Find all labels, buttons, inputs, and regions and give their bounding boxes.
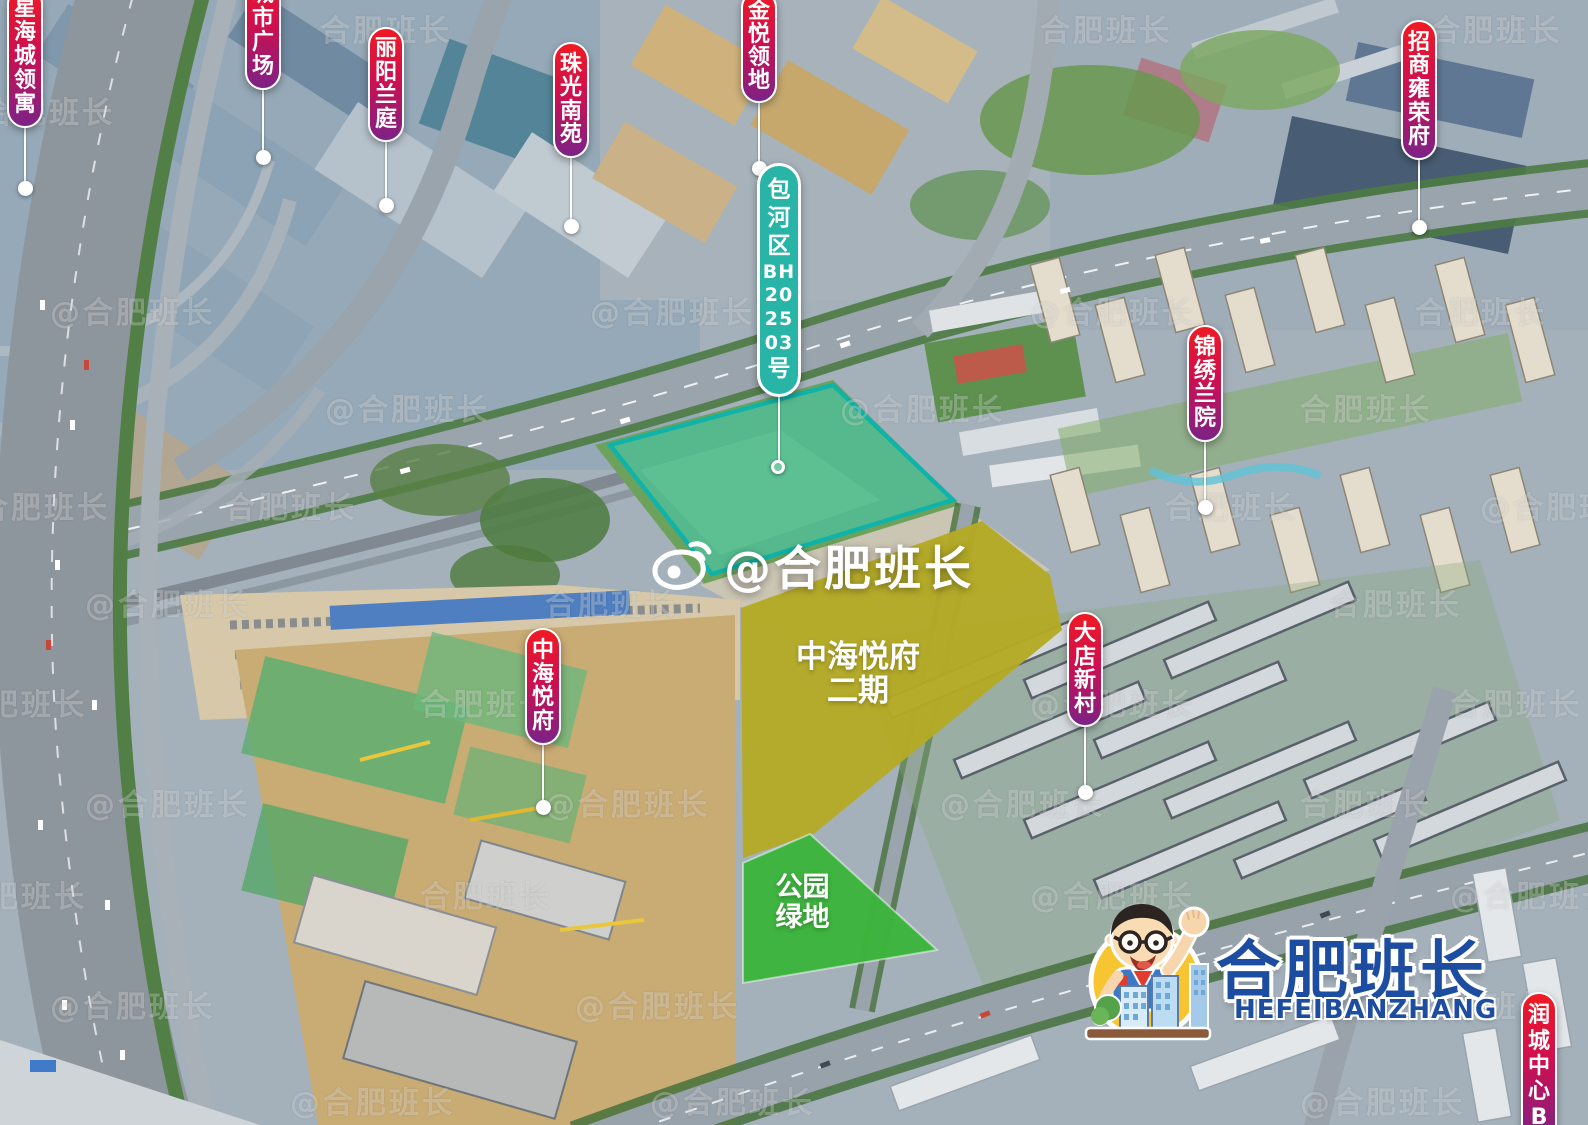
pin-char: 中 xyxy=(1528,1056,1550,1078)
map-pin-zhonghai-yuefu: 中海悦府 xyxy=(525,628,561,745)
pin-char: 市 xyxy=(252,8,274,30)
location-dot-dadian-xincun xyxy=(1078,785,1093,800)
leader-line-chengshi-guangchang xyxy=(262,90,264,153)
watermark-tile: @合肥班长 xyxy=(85,780,250,824)
map-pin-zhaoshang-yongrongfu: 招商雍荣府 xyxy=(1401,20,1437,160)
park-caption: 公园 绿地 xyxy=(745,873,860,932)
map-pin-liyang-lanting: 丽阳兰庭 xyxy=(368,27,404,142)
pin-char: 广 xyxy=(252,32,274,54)
pin-char: 光 xyxy=(560,77,582,99)
pin-char: 丽 xyxy=(375,38,397,60)
phase2-caption-line2: 二期 xyxy=(758,674,958,708)
pin-char: 南 xyxy=(560,101,582,123)
pin-char: 金 xyxy=(748,1,770,23)
pin-char: 珠 xyxy=(560,54,582,76)
phase2-caption-line1: 中海悦府 xyxy=(758,640,958,674)
watermark-tile: 合肥班长 xyxy=(1415,288,1547,332)
pin-char: 星 xyxy=(14,0,36,20)
leader-line-liyang-lanting xyxy=(385,142,387,201)
leader-line-zhuguang-nanyuan xyxy=(570,158,572,222)
pin-char: 包 xyxy=(768,179,791,202)
location-dot-zhaoshang-yongrongfu xyxy=(1412,220,1427,235)
pin-char: 府 xyxy=(532,711,554,733)
map-pin-jinxiu-lanyuan: 锦绣兰院 xyxy=(1187,325,1223,442)
pin-char: 心 xyxy=(1528,1081,1550,1103)
phase2-caption: 中海悦府 二期 xyxy=(758,640,958,708)
map-pin-xinghaicheng-lingyu: 星海城领寓 xyxy=(7,0,43,128)
pin-char: 城 xyxy=(14,46,36,68)
pin-char: 河 xyxy=(768,207,791,230)
leader-line-dadian-xincun xyxy=(1084,727,1086,788)
watermark-tile: 合肥班长 xyxy=(1330,580,1462,624)
watermark-tile: @合肥班长 xyxy=(85,580,250,624)
pin-char: 25 xyxy=(765,310,793,329)
watermark-tile: 合肥班长 xyxy=(1430,6,1562,50)
pin-char: 府 xyxy=(1408,126,1430,148)
pin-char: 城 xyxy=(1528,1031,1550,1053)
location-dot-liyang-lanting xyxy=(379,198,394,213)
watermark-tile: 合肥班长 xyxy=(1300,385,1432,429)
location-dot-zhonghai-yuefu xyxy=(536,800,551,815)
watermark-tile: @合肥班长 xyxy=(1030,680,1195,724)
pin-char: 兰 xyxy=(1194,384,1216,406)
pin-char: 号 xyxy=(768,358,791,381)
watermark-tile: 合肥班长 xyxy=(1165,483,1297,527)
pin-char: 荣 xyxy=(1408,103,1430,125)
pin-char: 阳 xyxy=(375,62,397,84)
watermark-tile: @合肥班长 xyxy=(575,982,740,1026)
watermark-tile: 合肥班长 xyxy=(1300,780,1432,824)
mascot-boy-icon xyxy=(1078,888,1228,1048)
watermark-tile: @合肥班长 xyxy=(1480,483,1588,527)
location-dot-zhuguang-nanyuan xyxy=(564,219,579,234)
leader-line-jinxiu-lanyuan xyxy=(1204,442,1206,503)
pin-char: 场 xyxy=(252,56,274,78)
watermark-tile: @合肥班长 xyxy=(290,1078,455,1122)
pin-char: 领 xyxy=(14,70,36,92)
pin-char: 海 xyxy=(532,664,554,686)
location-dot-chengshi-guangchang xyxy=(256,150,271,165)
pin-char: 大 xyxy=(1074,623,1096,645)
weibo-icon xyxy=(648,535,714,595)
leader-line-jinyue-lingdi xyxy=(758,103,760,164)
watermark-tile: @合肥班长 xyxy=(545,780,710,824)
map-pin-site-parcel-label: 包河区BH202503号 xyxy=(757,163,801,397)
pin-char: 店 xyxy=(1074,647,1096,669)
watermark-tile: @合肥班长 xyxy=(325,385,490,429)
pin-char: 雍 xyxy=(1408,79,1430,101)
watermark-tile: @合肥班长 xyxy=(1300,1078,1465,1122)
pin-char: 悦 xyxy=(532,687,554,709)
pin-char: 中 xyxy=(532,640,554,662)
pin-char: 锦 xyxy=(1194,337,1216,359)
pin-char: 润 xyxy=(1528,1005,1550,1027)
leader-line-xinghaicheng-lingyu xyxy=(24,128,26,184)
watermark-tile: @合肥班长 xyxy=(1450,872,1588,916)
brand-subtitle: HEFEIBANZHANG xyxy=(1234,995,1454,1025)
watermark-tile: 合肥班长 xyxy=(1450,680,1582,724)
pin-char: 20 xyxy=(765,286,793,305)
park-caption-line1: 公园 xyxy=(745,873,860,903)
pin-char: 寓 xyxy=(14,94,36,116)
watermark-tile: 合肥班长 xyxy=(1040,6,1172,50)
pin-char: 海 xyxy=(14,22,36,44)
watermark-tile: @合肥班长 xyxy=(50,982,215,1026)
pin-char: 兰 xyxy=(375,85,397,107)
location-dot-xinghaicheng-lingyu xyxy=(18,181,33,196)
pin-char: 03 xyxy=(765,334,793,353)
map-pin-chengshi-guangchang: 城市广场 xyxy=(245,0,281,90)
pin-char: BH xyxy=(763,263,795,282)
pin-char: B xyxy=(1531,1107,1548,1125)
map-pin-jinyue-lingdi: 金悦领地 xyxy=(741,0,777,103)
map-pin-dadian-xincun: 大店新村 xyxy=(1067,612,1103,727)
leader-line-zhonghai-yuefu xyxy=(542,745,544,803)
location-dot-jinxiu-lanyuan xyxy=(1198,500,1213,515)
pin-char: 悦 xyxy=(748,24,770,46)
watermark-tile: @合肥班长 xyxy=(590,288,755,332)
pin-char: 院 xyxy=(1194,408,1216,430)
watermark-tile: @合肥班长 xyxy=(0,483,110,527)
watermark-tile: 合肥班长 xyxy=(225,483,357,527)
pin-char: 领 xyxy=(748,47,770,69)
map-pin-zhuguang-nanyuan: 珠光南苑 xyxy=(553,42,589,158)
weibo-watermark: @合肥班长 xyxy=(648,530,974,599)
weibo-watermark-text: @合肥班长 xyxy=(724,530,974,599)
watermark-tile: @合肥班长 xyxy=(50,288,215,332)
watermark-tile: @合肥班长 xyxy=(1030,288,1195,332)
pin-char: 绣 xyxy=(1194,361,1216,383)
pin-char: 招 xyxy=(1408,32,1430,54)
annotated-aerial-map: 中海悦府 二期 公园 绿地 合肥班长合肥班长合肥班长@合肥班长@合肥班长@合肥班… xyxy=(0,0,1588,1125)
watermark-tile: 合肥班长 xyxy=(0,680,87,724)
location-dot-site-parcel-label xyxy=(771,460,785,474)
watermark-tile: @合肥班长 xyxy=(840,385,1005,429)
pin-char: 地 xyxy=(748,70,770,92)
pin-char: 区 xyxy=(768,235,791,258)
leader-line-site-parcel-label xyxy=(778,397,780,463)
pin-char: 新 xyxy=(1074,670,1096,692)
park-caption-line2: 绿地 xyxy=(745,903,860,933)
pin-char: 庭 xyxy=(375,109,397,131)
map-pin-runcheng-zhongxin-b: 润城中心B xyxy=(1521,992,1557,1125)
pin-char: 村 xyxy=(1074,694,1096,716)
watermark-tile: 合肥班长 xyxy=(420,872,552,916)
watermark-tile: 合肥班长 xyxy=(0,872,87,916)
pin-char: 商 xyxy=(1408,55,1430,77)
watermark-tile: @合肥班长 xyxy=(650,1078,815,1122)
pin-char: 苑 xyxy=(560,124,582,146)
leader-line-zhaoshang-yongrongfu xyxy=(1418,160,1420,223)
